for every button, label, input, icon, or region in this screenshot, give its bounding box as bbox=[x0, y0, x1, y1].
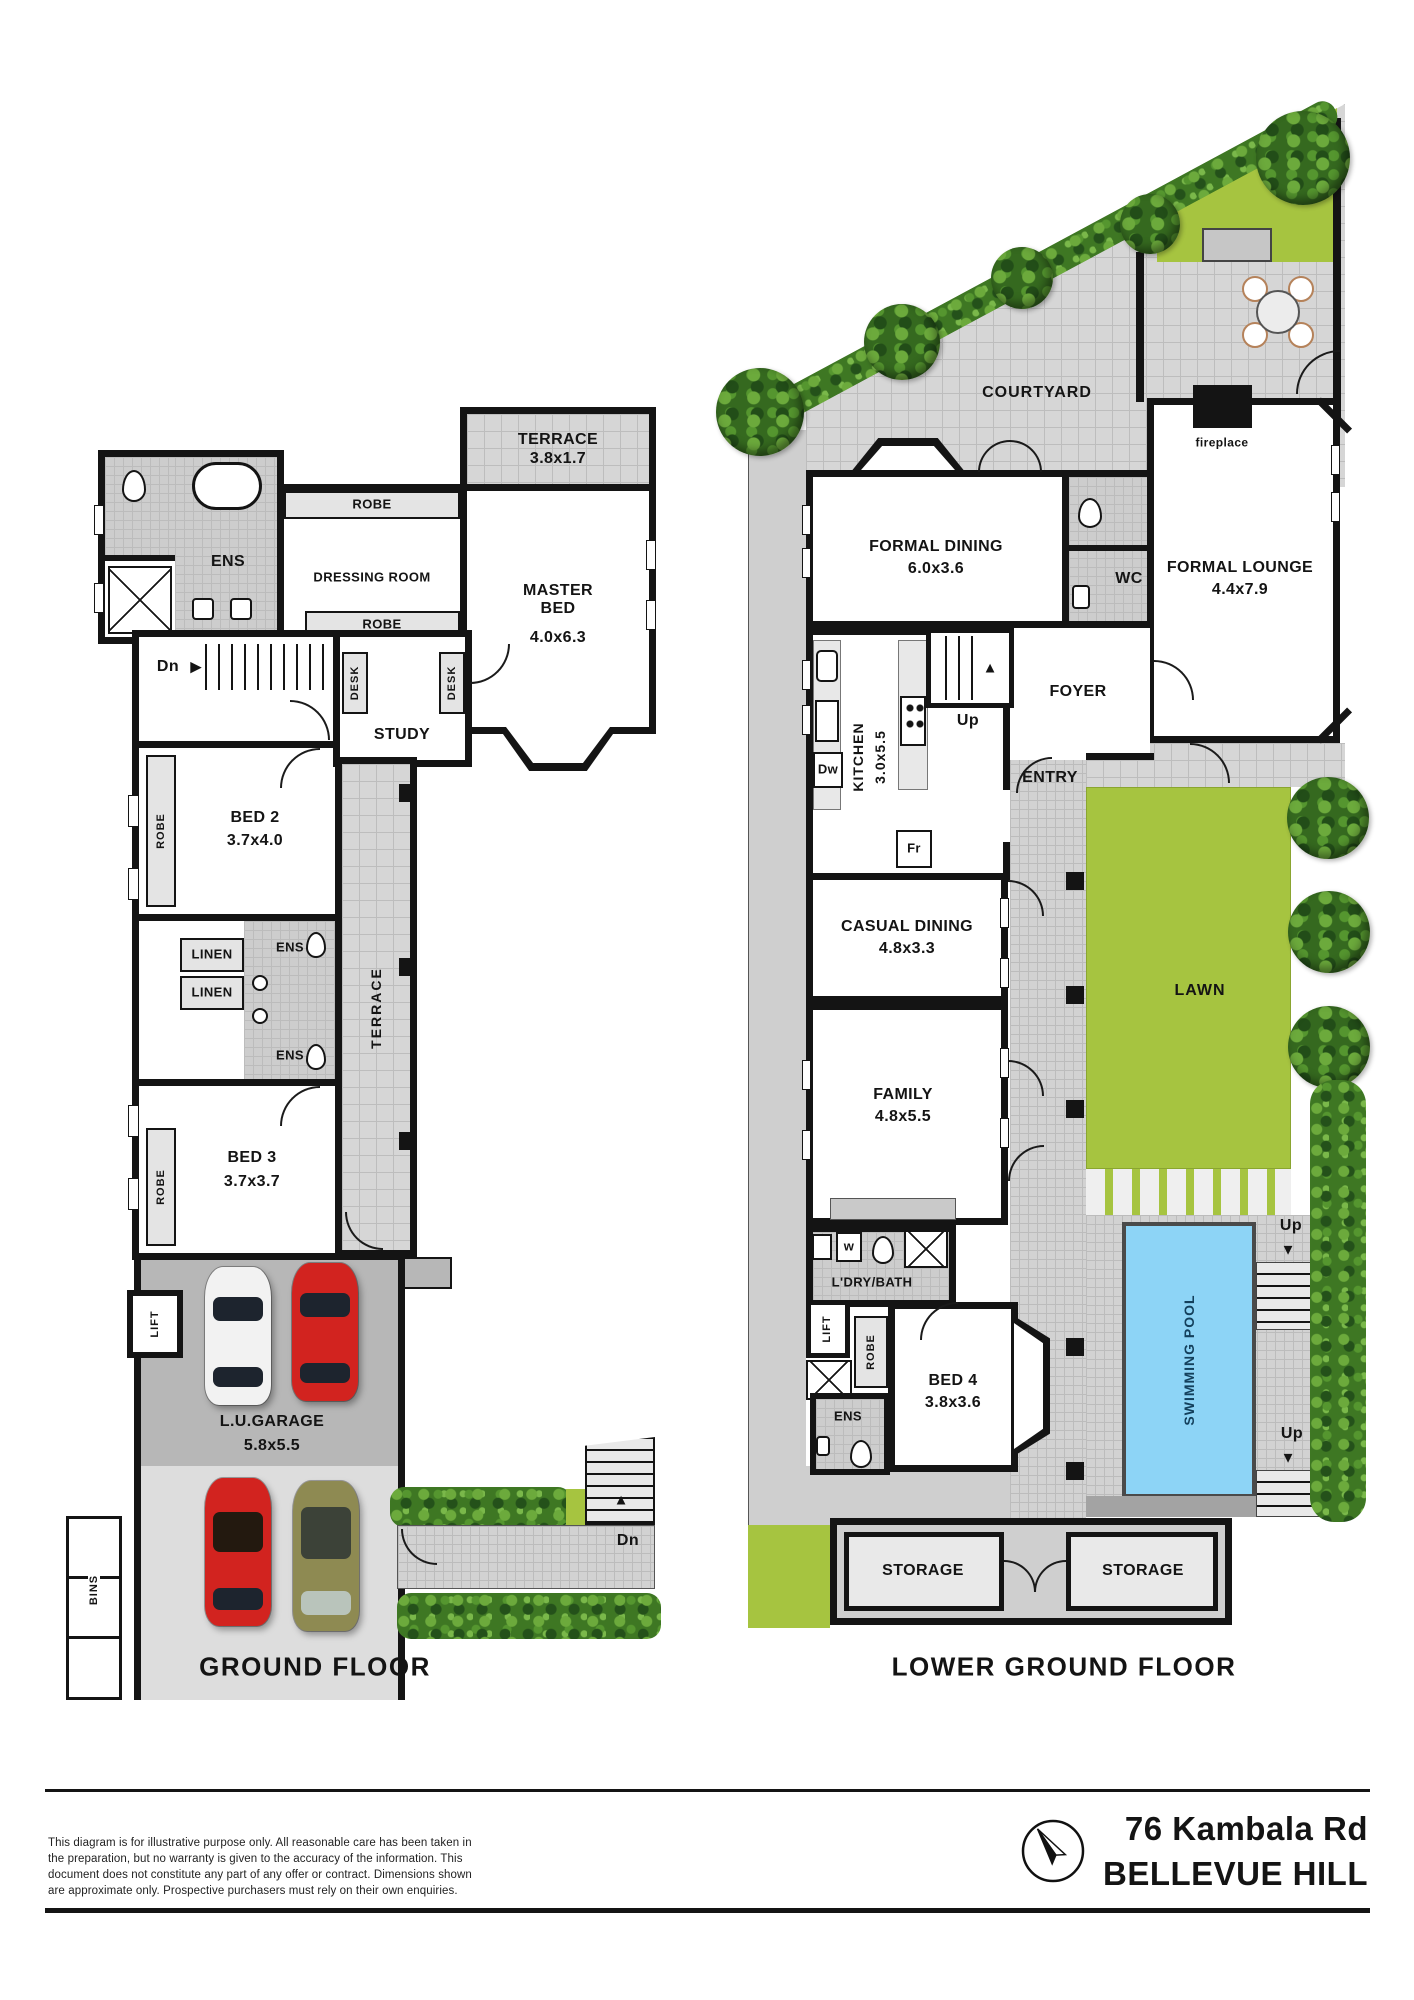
floorplan-page: TERRACE 3.8x1.7 MASTER BED 4.0x6.3 ROBE … bbox=[0, 0, 1414, 2000]
window bbox=[802, 1060, 811, 1090]
room-dims-master: 4.0x6.3 bbox=[530, 629, 586, 647]
window bbox=[802, 548, 811, 578]
cooktop-icon bbox=[900, 696, 926, 746]
disclaimer-line-1: This diagram is for illustrative purpose… bbox=[48, 1836, 472, 1852]
stairs-dn-label: Dn bbox=[157, 658, 179, 676]
window bbox=[1331, 445, 1340, 475]
window bbox=[646, 540, 656, 570]
car-red bbox=[292, 1263, 358, 1401]
pillar bbox=[1066, 872, 1084, 890]
lower-ground-floor-title: LOWER GROUND FLOOR bbox=[892, 1652, 1237, 1683]
hedge bbox=[390, 1487, 572, 1527]
pillar bbox=[1066, 986, 1084, 1004]
window bbox=[128, 1105, 139, 1137]
divider-rule-bottom bbox=[45, 1908, 1370, 1913]
shower-icon bbox=[904, 1230, 948, 1268]
window bbox=[802, 505, 811, 535]
wall bbox=[139, 914, 335, 921]
fridge-label: Fr bbox=[907, 842, 921, 857]
wall bbox=[139, 741, 335, 748]
down-arrow-icon: ▼ bbox=[1281, 1451, 1296, 1466]
garden-shed bbox=[1202, 228, 1272, 262]
disclaimer-line-3: document does not constitute any part of… bbox=[48, 1868, 472, 1884]
disclaimer-line-2: the preparation, but no warranty is give… bbox=[48, 1852, 463, 1868]
washer-label: w bbox=[844, 1240, 855, 1255]
tree-icon bbox=[1288, 891, 1370, 973]
boundary-hedge-right bbox=[1310, 1080, 1366, 1522]
fireplace bbox=[1193, 385, 1252, 428]
window bbox=[128, 868, 139, 900]
pillar bbox=[1066, 1462, 1084, 1480]
window bbox=[802, 660, 811, 690]
room-label-study: STUDY bbox=[374, 726, 430, 744]
room-label-storage2: STORAGE bbox=[1102, 1562, 1184, 1580]
room-label-formal-lounge: FORMAL LOUNGE bbox=[1167, 559, 1313, 577]
hedge bbox=[397, 1593, 661, 1639]
window bbox=[128, 1178, 139, 1210]
lower-ens4 bbox=[810, 1393, 890, 1475]
room-label-bins: BINS bbox=[88, 1573, 100, 1607]
stairs-up-label: Up bbox=[957, 712, 979, 730]
room-label-swimming-pool: SWIMMING POOL bbox=[1181, 1294, 1197, 1425]
room-label-robe2: ROBE bbox=[155, 813, 167, 849]
room-label-lawn: LAWN bbox=[1174, 982, 1225, 1000]
room-label-casual-dining: CASUAL DINING bbox=[841, 918, 973, 936]
ground-floor-title: GROUND FLOOR bbox=[199, 1652, 431, 1683]
room-dims-bed2: 3.7x4.0 bbox=[227, 832, 283, 850]
room-label-terrace-side: TERRACE bbox=[368, 967, 384, 1049]
pillar bbox=[399, 784, 417, 802]
room-label-ens4: ENS bbox=[834, 1410, 862, 1425]
room-dims-terrace-top: 3.8x1.7 bbox=[530, 450, 586, 468]
oven-icon bbox=[815, 700, 839, 742]
window bbox=[94, 505, 104, 535]
basin-icon bbox=[1072, 585, 1090, 609]
toilet-icon bbox=[850, 1440, 872, 1468]
room-label-storage1: STORAGE bbox=[882, 1562, 964, 1580]
tub-box bbox=[812, 1234, 832, 1260]
pillar bbox=[1066, 1338, 1084, 1356]
room-dims-kitchen: 3.0x5.5 bbox=[872, 730, 888, 784]
down-arrow-icon: ▼ bbox=[1281, 1243, 1296, 1258]
bay-window-master bbox=[498, 727, 618, 771]
north-compass-icon bbox=[1018, 1816, 1088, 1886]
window bbox=[128, 795, 139, 827]
wall bbox=[139, 1079, 335, 1086]
room-label-lift2: LIFT bbox=[821, 1315, 833, 1342]
room-label-dressing: DRESSING ROOM bbox=[313, 571, 430, 586]
room-label-ens-lower: ENS bbox=[276, 1049, 304, 1064]
tree-icon bbox=[864, 304, 940, 380]
window bbox=[1000, 958, 1009, 988]
window bbox=[802, 705, 811, 735]
room-label-robe4: ROBE bbox=[865, 1334, 877, 1370]
side-walkway bbox=[748, 430, 806, 1525]
room-label-wc: WC bbox=[1115, 570, 1142, 588]
room-dims-bed4: 3.8x3.6 bbox=[925, 1394, 981, 1412]
wall bbox=[105, 555, 175, 561]
room-label-master: MASTER BED bbox=[512, 582, 604, 618]
external-stairs-down bbox=[585, 1437, 655, 1525]
room-label-linen1: LINEN bbox=[192, 948, 233, 963]
toilet-icon bbox=[306, 932, 326, 958]
room-label-family: FAMILY bbox=[873, 1086, 933, 1104]
wall bbox=[1136, 252, 1144, 402]
tree-icon bbox=[1120, 194, 1180, 254]
stairs-down-internal bbox=[205, 644, 335, 690]
tree-icon bbox=[1288, 1006, 1370, 1088]
right-arrow-icon: ▶ bbox=[190, 660, 202, 675]
room-label-bed4: BED 4 bbox=[928, 1372, 977, 1390]
sink-icon bbox=[816, 650, 838, 682]
tree-icon bbox=[1256, 111, 1350, 205]
room-dims-formal-lounge: 4.4x7.9 bbox=[1212, 581, 1268, 599]
room-label-lift: LIFT bbox=[149, 1310, 161, 1337]
room-label-desk-left: DESK bbox=[349, 666, 361, 701]
toilet-icon bbox=[872, 1236, 894, 1264]
room-label-terrace-top: TERRACE bbox=[518, 431, 598, 449]
wall bbox=[1086, 753, 1154, 760]
room-label-robe3: ROBE bbox=[155, 1169, 167, 1205]
car-red-convertible bbox=[205, 1478, 271, 1626]
lawn bbox=[1086, 787, 1291, 1169]
basin-icon bbox=[252, 1008, 268, 1024]
room-label-robe-top: ROBE bbox=[352, 498, 391, 513]
divider-rule-top bbox=[45, 1789, 1370, 1792]
room-label-kitchen: KITCHEN bbox=[850, 722, 866, 791]
room-dims-casual-dining: 4.8x3.3 bbox=[879, 940, 935, 958]
window bbox=[1000, 1118, 1009, 1148]
stepping-stones bbox=[1086, 1169, 1291, 1215]
basin-icon bbox=[230, 598, 252, 620]
room-dims-garage: 5.8x5.5 bbox=[244, 1437, 300, 1455]
room-label-ens-master: ENS bbox=[211, 553, 245, 571]
pillar bbox=[399, 1132, 417, 1150]
fireplace-label: fireplace bbox=[1196, 436, 1249, 449]
bins bbox=[66, 1516, 122, 1700]
basin-icon bbox=[192, 598, 214, 620]
window bbox=[94, 583, 104, 613]
bathtub-icon bbox=[192, 462, 262, 510]
tree-icon bbox=[716, 368, 804, 456]
address-suburb: BELLEVUE HILL bbox=[1103, 1855, 1368, 1893]
room-label-garage: L.U.GARAGE bbox=[220, 1413, 324, 1431]
room-label-laundry-bath: L'DRY/BATH bbox=[832, 1276, 913, 1291]
room-dims-bed3: 3.7x3.7 bbox=[224, 1173, 280, 1191]
room-dims-formal-dining: 6.0x3.6 bbox=[908, 560, 964, 578]
bay-window-bed4 bbox=[1014, 1316, 1050, 1456]
room-label-courtyard: COURTYARD bbox=[982, 384, 1092, 402]
room-label-desk-right: DESK bbox=[446, 666, 458, 701]
shower-icon bbox=[108, 566, 172, 634]
lower-casual-dining bbox=[806, 873, 1008, 1003]
ground-terrace-top bbox=[460, 407, 656, 491]
tv-unit bbox=[830, 1198, 956, 1220]
passage-gap bbox=[1003, 790, 1010, 842]
window bbox=[1331, 492, 1340, 522]
toilet-icon bbox=[1078, 498, 1102, 528]
table-icon bbox=[1256, 290, 1300, 334]
toilet-icon bbox=[306, 1044, 326, 1070]
up-arrow-icon: ▲ bbox=[983, 661, 998, 676]
pillar bbox=[399, 958, 417, 976]
up-arrow-icon: ▲ bbox=[614, 1493, 629, 1508]
room-label-foyer: FOYER bbox=[1049, 683, 1106, 701]
disclaimer-line-4: are approximate only. Prospective purcha… bbox=[48, 1884, 458, 1900]
room-label-ens-upper: ENS bbox=[276, 941, 304, 956]
stairs-up-steps bbox=[934, 636, 974, 700]
grass-bottom-left bbox=[748, 1525, 830, 1628]
room-label-bed3: BED 3 bbox=[227, 1149, 276, 1167]
room-label-bed2: BED 2 bbox=[230, 809, 279, 827]
car-white bbox=[205, 1267, 271, 1405]
tree-icon bbox=[991, 247, 1053, 309]
dishwasher-label: Dw bbox=[818, 763, 838, 778]
wall bbox=[1069, 545, 1148, 551]
car-olive bbox=[293, 1481, 359, 1631]
basin-icon bbox=[816, 1436, 830, 1456]
wall bbox=[69, 1636, 119, 1639]
window bbox=[646, 600, 656, 630]
stairs-up-pool-bottom-label: Up bbox=[1281, 1425, 1303, 1443]
stairs-up-pool-top-label: Up bbox=[1280, 1217, 1302, 1235]
room-dims-family: 4.8x5.5 bbox=[875, 1108, 931, 1126]
window bbox=[802, 1130, 811, 1160]
pillar bbox=[1066, 1100, 1084, 1118]
room-label-linen2: LINEN bbox=[192, 986, 233, 1001]
room-label-formal-dining: FORMAL DINING bbox=[869, 538, 1003, 556]
toilet-icon bbox=[122, 470, 146, 502]
basin-icon bbox=[252, 975, 268, 991]
address-street: 76 Kambala Rd bbox=[1125, 1810, 1368, 1848]
tree-icon bbox=[1287, 777, 1369, 859]
stairs-dn-ext-label: Dn bbox=[617, 1532, 639, 1550]
